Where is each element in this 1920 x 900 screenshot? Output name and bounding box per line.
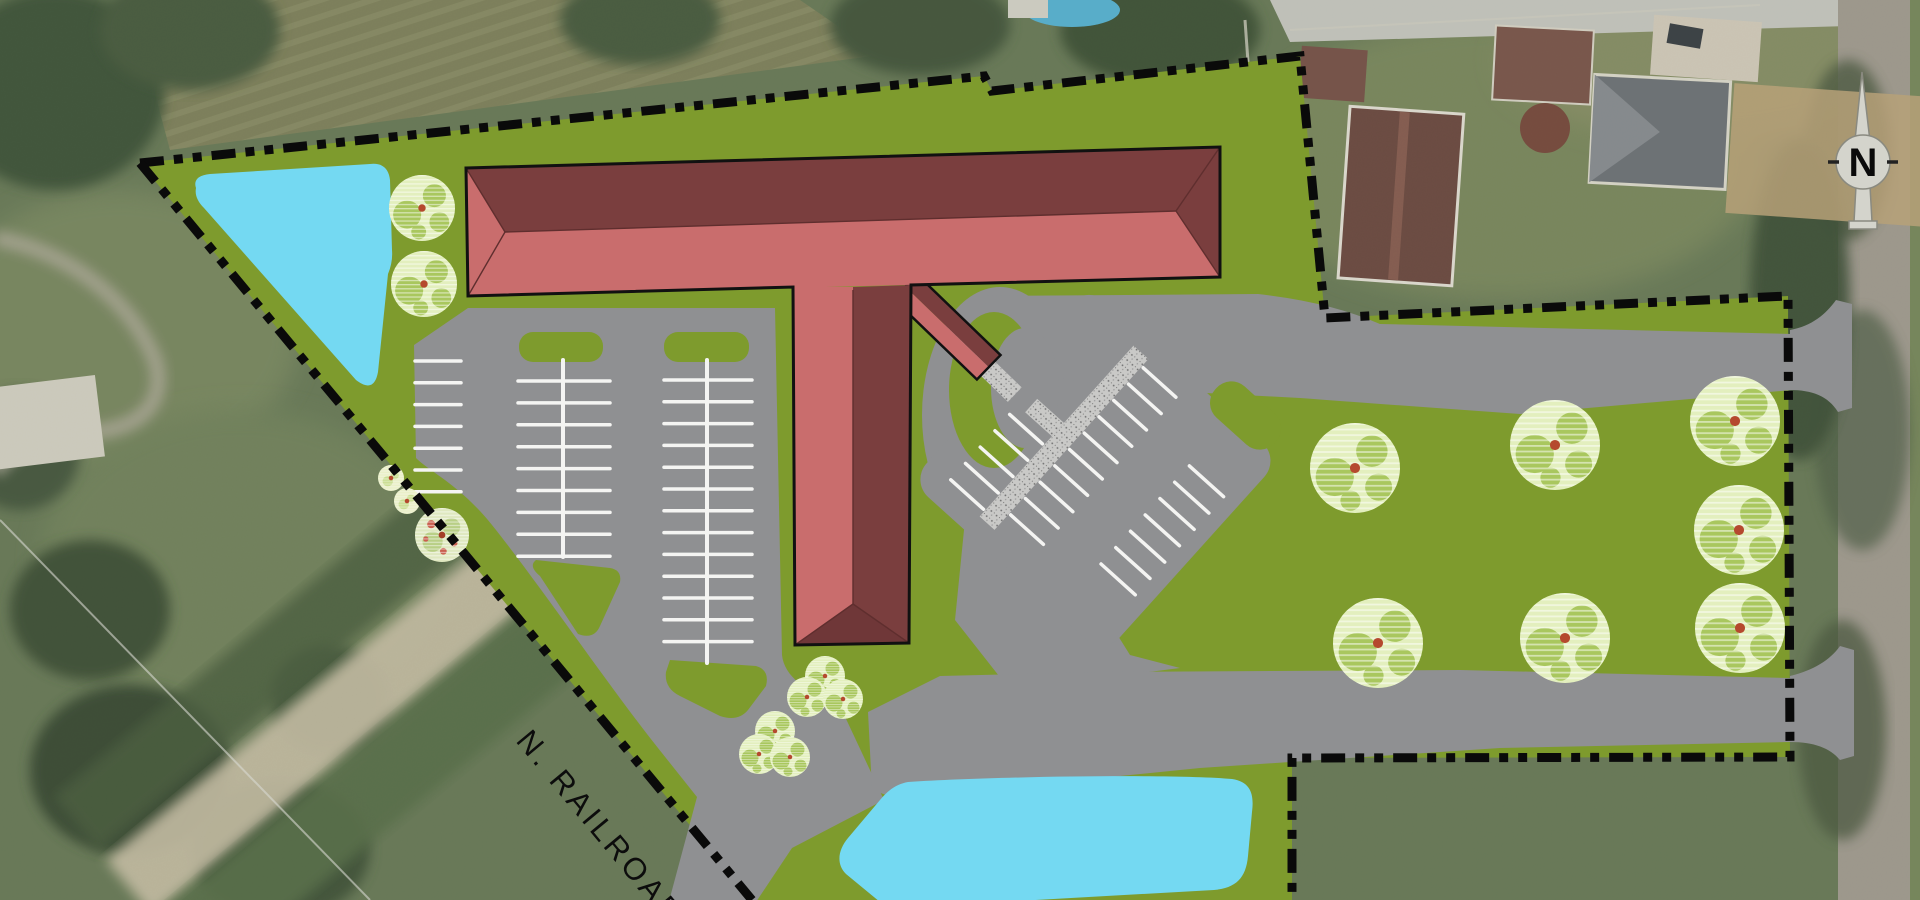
compass-label: N — [1849, 141, 1878, 185]
site-plan-canvas: N. RAILROAD ST N — [0, 0, 1920, 900]
south-pond — [839, 776, 1252, 900]
tree-icon — [1510, 400, 1600, 490]
tree-icon — [391, 251, 457, 317]
tree-icon — [823, 679, 863, 719]
tree-icon — [1310, 423, 1400, 513]
tree-icon — [1694, 485, 1784, 575]
tree-icon — [389, 175, 455, 241]
tree-icon — [1690, 376, 1780, 466]
site-plan-drawing: N. RAILROAD ST N — [0, 0, 1920, 900]
tree-icon — [770, 737, 810, 777]
tree-icon — [1695, 583, 1785, 673]
tree-icon — [1520, 593, 1610, 683]
tree-icon — [787, 677, 827, 717]
tree-icon — [1333, 598, 1423, 688]
